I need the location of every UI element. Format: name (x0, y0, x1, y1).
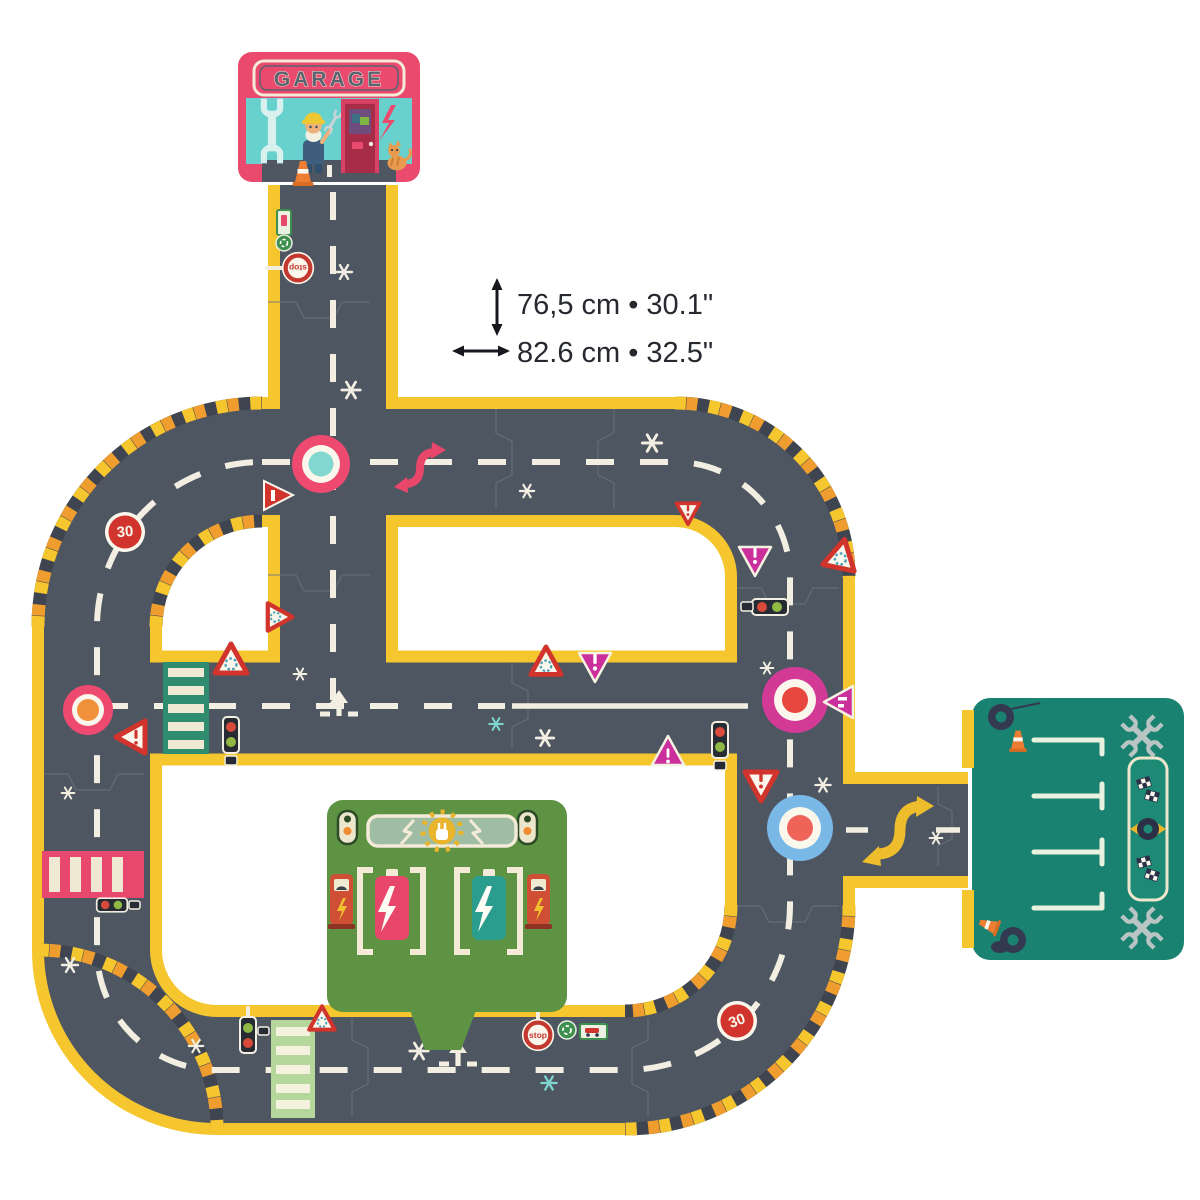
charging-station-sign (368, 812, 516, 850)
garage-building: GARAGE (238, 52, 420, 186)
car-sign-icon (580, 1024, 607, 1039)
horizontal-arrow-icon (452, 346, 510, 357)
dimension-annotations: 76,5 cm • 30.1" 82.6 cm • 32.5" (452, 278, 713, 369)
race-service-sign (1129, 758, 1167, 900)
roundabout-marking-icon (292, 435, 350, 493)
fuel-sign-icon (277, 210, 291, 235)
car-sign-icon (276, 235, 292, 251)
roundabout-marking-icon (762, 667, 828, 733)
battery-icon (375, 869, 409, 940)
crosswalk-pink (42, 851, 144, 898)
product-illustration: stop 30 (0, 0, 1200, 1200)
garage-sign-label: GARAGE (274, 68, 384, 91)
parking-area (962, 698, 1184, 960)
crosswalk-light-green (271, 1020, 315, 1118)
traffic-light-icon (223, 717, 239, 765)
vertical-arrow-icon (492, 278, 503, 336)
height-dimension-label: 76,5 cm • 30.1" (517, 289, 713, 321)
width-dimension-label: 82.6 cm • 32.5" (517, 337, 713, 369)
charging-post-icon (518, 811, 537, 844)
roundabout-marking-icon (767, 795, 833, 861)
car-sign-icon (558, 1021, 576, 1039)
road-edge-segment (962, 890, 974, 948)
road-edge-segment (962, 710, 974, 768)
door-icon (341, 99, 379, 173)
charging-pump-icon (328, 874, 355, 929)
battery-icon (472, 869, 506, 940)
traffic-light-icon (712, 722, 728, 770)
charging-pump-icon (525, 874, 552, 929)
roundabout-marking-icon (63, 685, 113, 735)
crosswalk-dark-green (163, 662, 209, 754)
garage-sign: GARAGE (254, 61, 404, 95)
charging-post-icon (338, 811, 357, 844)
road-puzzle-illustration: stop 30 (0, 0, 1200, 1200)
